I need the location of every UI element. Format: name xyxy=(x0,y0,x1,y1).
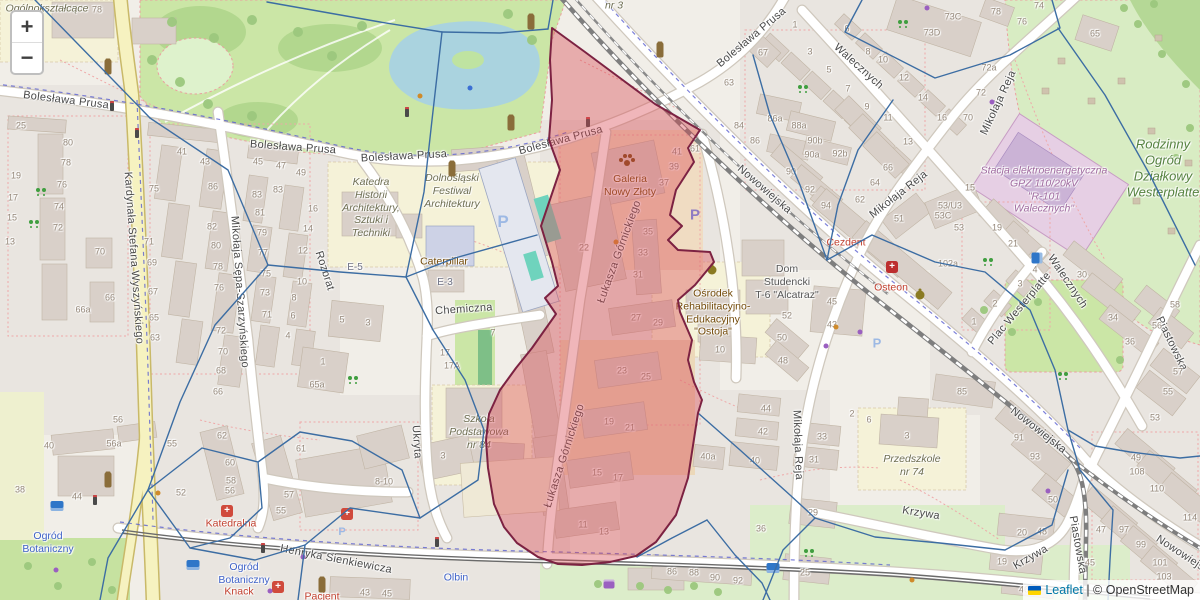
copyright-symbol: © xyxy=(1093,583,1102,597)
leaflet-link[interactable]: Leaflet xyxy=(1045,583,1083,597)
attribution-bar: Leaflet | © OpenStreetMap xyxy=(1023,580,1200,600)
zoom-out-button[interactable]: − xyxy=(12,42,42,73)
ukraine-flag-icon xyxy=(1028,586,1041,595)
attribution-separator: | xyxy=(1083,583,1093,597)
map-canvas[interactable]: Bolesława PrusaBolesława PrusaBolesława … xyxy=(0,0,1200,600)
zoom-control: + − xyxy=(10,10,44,75)
zoom-in-button[interactable]: + xyxy=(12,12,42,42)
osm-label[interactable]: OpenStreetMap xyxy=(1106,583,1194,597)
